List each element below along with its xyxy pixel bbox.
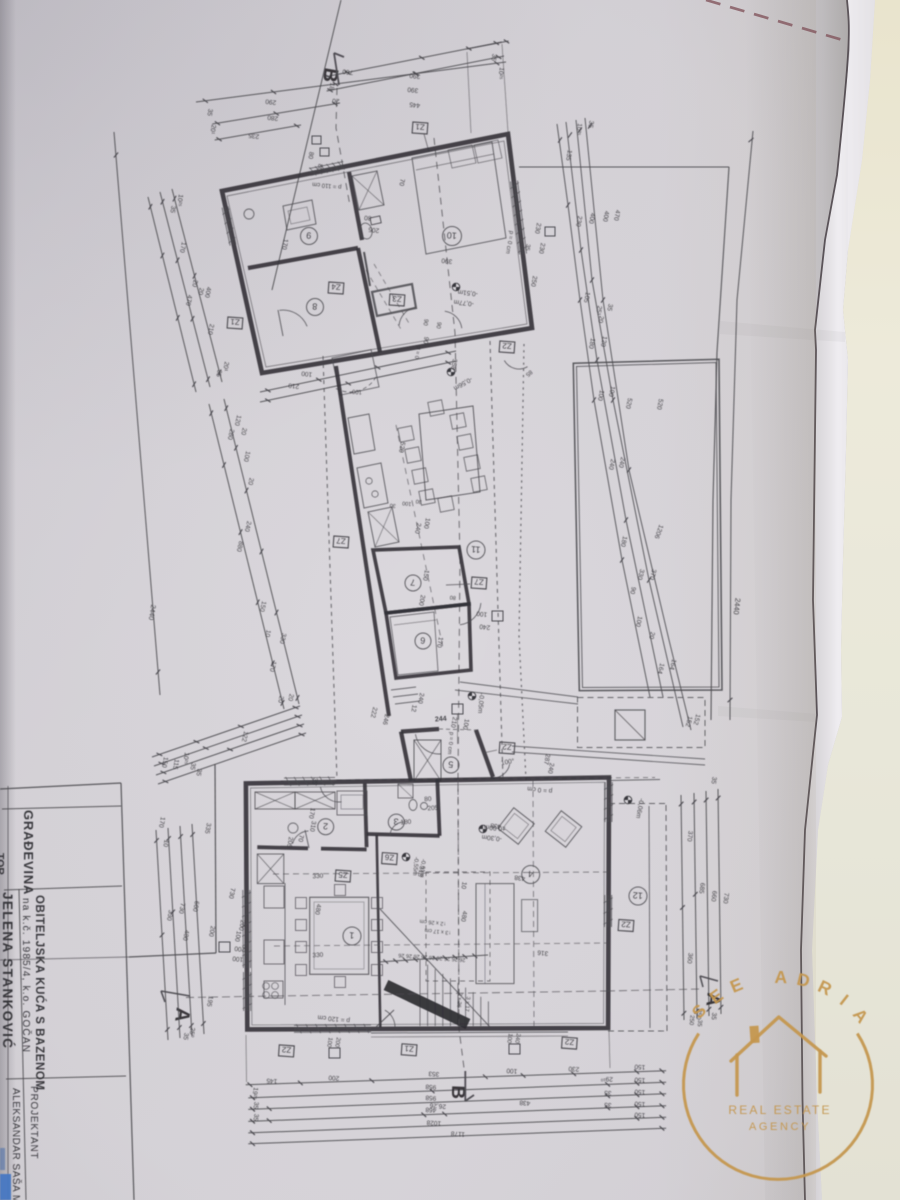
svg-text:12: 12 [632,890,643,901]
svg-text:1: 1 [349,930,355,940]
svg-text:Z7: Z7 [474,577,484,587]
svg-text:390: 390 [441,256,453,264]
svg-text:80: 80 [450,594,457,601]
svg-text:AGENCY: AGENCY [749,1121,811,1133]
svg-text:2: 2 [323,821,329,831]
svg-text:PROJEKTANT: PROJEKTANT [28,1086,39,1159]
svg-text:GRAĐEVINA: GRAĐEVINA [21,810,36,895]
svg-text:685: 685 [697,882,705,894]
svg-text:200: 200 [328,1074,340,1082]
svg-text:Z2: Z2 [502,341,512,351]
svg-text:250: 250 [687,1015,694,1026]
svg-text:958: 958 [425,1083,437,1091]
svg-text:760: 760 [342,67,354,75]
svg-text:5: 5 [448,759,454,769]
svg-text:150: 150 [634,1111,646,1119]
svg-text:29¹⁰: 29¹⁰ [600,1075,613,1084]
svg-text:8: 8 [312,301,318,311]
svg-text:200: 200 [234,944,246,952]
svg-text:330: 330 [312,873,324,881]
svg-text:35: 35 [604,1089,612,1097]
svg-text:230: 230 [568,1065,580,1073]
svg-text:REAL ESTATE: REAL ESTATE [728,1103,831,1117]
svg-text:Z2: Z2 [621,919,631,929]
svg-text:80: 80 [424,796,432,804]
svg-text:JELENA STANKOVIĆ: JELENA STANKOVIĆ [0,892,15,1049]
svg-text:35: 35 [710,1012,718,1020]
svg-text:1178: 1178 [450,1129,465,1137]
svg-text:30: 30 [389,502,396,509]
svg-text:100: 100 [232,954,244,962]
svg-text:240: 240 [479,622,491,630]
svg-text:na k.č. 1985/4, k.o. GOČAN: na k.č. 1985/4, k.o. GOČAN [20,898,33,1053]
svg-text:6: 6 [420,635,426,645]
svg-text:150: 150 [634,1063,646,1071]
svg-text:390: 390 [407,85,419,93]
svg-text:360: 360 [685,952,693,964]
svg-text:390: 390 [409,71,421,79]
svg-text:210: 210 [288,381,300,389]
svg-text:730: 730 [721,892,729,904]
svg-text:316: 316 [537,948,549,956]
svg-text:20: 20 [332,97,340,105]
svg-text:Z4: Z4 [331,282,341,292]
svg-text:OBITELJSKA KUĆA S BAZENOM: OBITELJSKA KUĆA S BAZENOM [33,895,46,1091]
svg-text:ALEKSANDAR SAŠA MISIR: ALEKSANDAR SAŠA MISIR [10,1088,23,1200]
svg-text:Z1: Z1 [415,122,425,132]
svg-text:Z7: Z7 [336,536,346,546]
svg-text:11: 11 [471,544,481,555]
svg-text:Z2: Z2 [281,1045,291,1055]
svg-text:35: 35 [604,1101,612,1109]
svg-text:100: 100 [301,369,313,377]
svg-text:150: 150 [634,1100,646,1108]
svg-text:235: 235 [248,131,260,139]
svg-text:30: 30 [415,498,422,505]
svg-text:100: 100 [506,1067,518,1075]
svg-text:Z2: Z2 [502,742,512,752]
svg-text:100: 100 [476,609,488,617]
svg-text:353: 353 [428,1070,440,1078]
svg-text:205: 205 [427,805,439,813]
svg-text:438: 438 [519,1099,531,1107]
svg-text:9: 9 [306,230,312,240]
svg-text:290: 290 [265,97,277,105]
svg-text:10: 10 [446,230,457,241]
svg-text:1028: 1028 [426,1118,441,1126]
svg-text:370: 370 [685,830,693,842]
svg-text:438: 438 [514,873,526,881]
svg-text:445: 445 [409,100,421,108]
svg-text:TOR: TOR [0,853,6,875]
svg-text:Z1: Z1 [404,1044,414,1054]
svg-text:330: 330 [312,952,324,960]
svg-text:205: 205 [368,225,380,233]
svg-text:660: 660 [709,890,717,902]
svg-text:4: 4 [528,869,534,879]
svg-text:7: 7 [410,577,416,587]
svg-text:A: A [774,967,788,987]
svg-text:Z1: Z1 [230,317,240,327]
svg-text:244: 244 [435,716,447,724]
svg-text:150: 150 [634,1088,646,1096]
svg-text:150: 150 [634,1076,646,1084]
svg-text:280: 280 [267,113,279,121]
svg-text:80: 80 [364,214,372,222]
svg-text:35: 35 [586,120,594,129]
svg-text:3: 3 [393,816,399,826]
svg-text:145: 145 [266,1077,278,1085]
svg-text:Z5: Z5 [338,870,348,880]
svg-text:Z3: Z3 [392,294,402,304]
svg-text:958: 958 [425,1094,437,1102]
svg-text:Z2: Z2 [564,1037,574,1047]
svg-text:26,26: 26,26 [429,1101,446,1109]
svg-text:Z6: Z6 [384,852,394,862]
svg-text:100: 100 [402,499,412,506]
svg-text:438: 438 [490,821,502,829]
